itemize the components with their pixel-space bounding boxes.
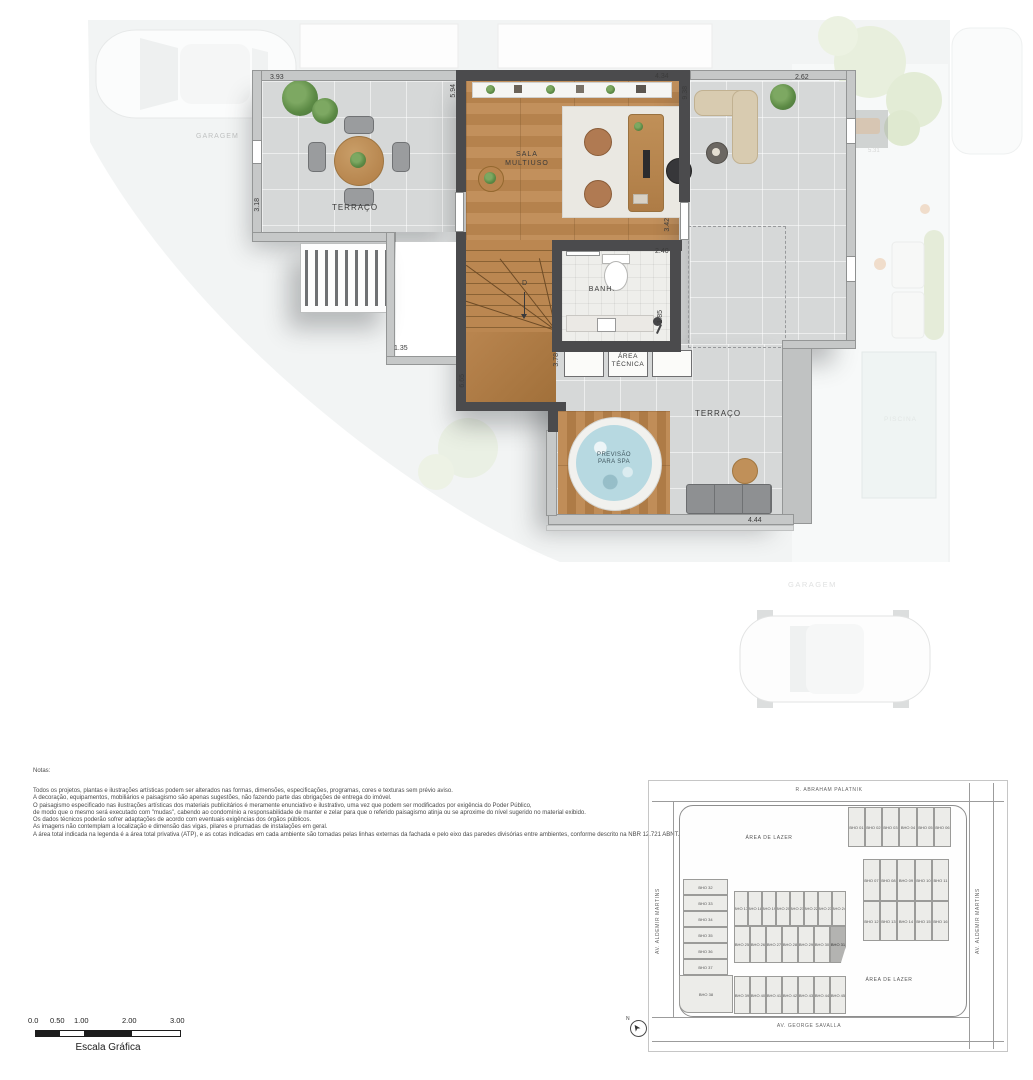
scale-bar <box>35 1030 181 1037</box>
shelf-plant <box>606 85 615 94</box>
scale-tick: 1.00 <box>74 1016 89 1025</box>
page: GARAGEM GARAGEM PISCINA 5.31 <box>0 0 1033 1080</box>
parapet <box>846 70 856 348</box>
leisure-area-top-label: ÁREA DE LAZER <box>709 835 829 841</box>
rug <box>562 106 684 218</box>
street-line <box>652 1041 1004 1042</box>
site-plan: R. ABRAHAM PALATNIK AV. GEORGE SAVALLA A… <box>648 780 1008 1052</box>
dim-label: 2.62 <box>795 74 809 81</box>
table-plant <box>350 152 366 168</box>
stair-arrow-head <box>521 314 527 319</box>
dim-label: 2.40 <box>655 248 669 255</box>
site-unit: BHO 24 <box>832 891 846 926</box>
plant <box>770 84 796 110</box>
site-unit: BHO 23 <box>818 891 832 926</box>
monitor <box>643 150 650 178</box>
desk-plant <box>634 122 643 131</box>
spa-label: PREVISÃO PARA SPA <box>584 452 644 466</box>
site-unit: BHO 22 <box>804 891 818 926</box>
tech-area-line2: TÉCNICA <box>606 361 650 369</box>
site-unit: BHO 36 <box>683 943 728 959</box>
dim-label: 3.78 <box>553 353 560 367</box>
piscina-label: PISCINA <box>884 416 917 423</box>
site-unit: BHO 35 <box>683 927 728 943</box>
neighbor-dim-label: 5.31 <box>868 148 880 154</box>
sliding-door <box>680 202 689 240</box>
sink <box>597 318 616 332</box>
shelf-decor <box>636 85 646 93</box>
site-unit: BHO 07 <box>863 859 880 901</box>
site-unit: BHO 29 <box>798 926 814 963</box>
notes-block: Notas: Todos os projetos, plantas e ilus… <box>33 768 613 839</box>
site-unit: BHO 15 <box>915 901 932 941</box>
tree <box>418 454 454 490</box>
site-unit: BHO 01 <box>848 807 865 847</box>
site-unit: BHO 10 <box>915 859 932 901</box>
bath-door-leaf <box>566 251 600 256</box>
notes-line: As imagens não contemplam a localização … <box>33 824 613 831</box>
site-unit: BHO 42 <box>782 976 798 1014</box>
pool <box>862 352 936 498</box>
roof-panel <box>498 24 712 68</box>
dim-label: 4.44 <box>748 517 762 524</box>
roof-panel <box>300 24 458 68</box>
site-unit: BHO 18 <box>748 891 762 926</box>
side-table <box>874 258 886 270</box>
stair-winder <box>466 332 556 402</box>
site-unit: BHO 30 <box>814 926 830 963</box>
site-unit: BHO 17 <box>734 891 748 926</box>
site-unit: BHO 09 <box>897 859 915 901</box>
site-unit: BHO 39 <box>734 976 750 1014</box>
shelf-plant <box>486 85 495 94</box>
site-unit: BHO 26 <box>750 926 766 963</box>
lounger <box>892 292 924 338</box>
site-unit: BHO 16 <box>932 901 949 941</box>
parapet <box>690 70 854 80</box>
window <box>252 140 262 164</box>
stair-direction-label: D <box>519 279 531 288</box>
street-left-label: AV. ALDEMIR MARTINS <box>655 861 661 981</box>
shelf-decor <box>514 85 522 93</box>
scale-tick: 0.50 <box>50 1016 65 1025</box>
street-line <box>993 783 994 1049</box>
dim-label: 3.18 <box>254 198 261 212</box>
bath-label: BANH. <box>582 285 622 294</box>
scale-tick: 2.00 <box>122 1016 137 1025</box>
sliding-door <box>455 192 464 232</box>
notes-line: O paisagismo especificado nas ilustraçõe… <box>33 803 613 810</box>
street-top-label: R. ABRAHAM PALATNIK <box>739 787 919 793</box>
parapet-band <box>782 348 812 524</box>
notes-title: Notas: <box>33 768 613 774</box>
site-unit: BHO 38 <box>679 975 733 1013</box>
pergola-slats <box>305 250 387 306</box>
tech-area-label: ÁREA TÉCNICA <box>606 353 650 368</box>
site-unit: BHO 03 <box>882 807 899 847</box>
dim-label: 1.85 <box>657 310 664 324</box>
street-line <box>969 783 970 1049</box>
wall <box>548 402 558 432</box>
street-line <box>652 1017 969 1018</box>
notes-line: Todos os projetos, plantas e ilustrações… <box>33 788 613 795</box>
sala-label: SALA MULTIUSO <box>492 150 562 168</box>
street-right-label: AV. ALDEMIR MARTINS <box>975 861 981 981</box>
notes-line: A decoração, equipamentos, mobiliários e… <box>33 795 613 802</box>
street-line <box>652 801 1004 802</box>
garagem-bottom-label: GARAGEM <box>788 580 837 589</box>
notes-line: A área total indicada na legenda é a áre… <box>33 832 613 839</box>
side-table <box>732 458 758 484</box>
ac-unit <box>564 350 604 377</box>
scale-tick: 0.0 <box>28 1016 38 1025</box>
north-compass: N ➤ <box>626 1016 648 1038</box>
site-unit: BHO 41 <box>766 976 782 1014</box>
stair-arrow-line <box>524 292 525 314</box>
parapet <box>386 356 466 365</box>
dim-label: 1.35 <box>394 345 408 352</box>
dim-label: 5.94 <box>450 84 457 98</box>
tech-area-line1: ÁREA <box>618 353 638 360</box>
dim-label: 3.42 <box>664 218 671 232</box>
site-unit: BHO 37 <box>683 959 728 975</box>
site-unit: BHO 02 <box>865 807 882 847</box>
site-unit: BHO 13 <box>880 901 897 941</box>
desk-tray <box>633 194 648 204</box>
wall <box>552 240 562 352</box>
site-unit: BHO 27 <box>766 926 782 963</box>
staircase <box>466 240 556 332</box>
spa-label-line2: PARA SPA <box>584 459 644 466</box>
hedge <box>924 230 944 340</box>
void-outline <box>688 226 786 348</box>
terrace-left-label: TERRAÇO <box>320 203 390 212</box>
site-unit: BHO 21 <box>790 891 804 926</box>
garagem-left-label: GARAGEM <box>196 133 239 140</box>
site-unit: BHO 20 <box>776 891 790 926</box>
notes-line: de modo que o mesmo será executado com "… <box>33 810 613 817</box>
window <box>846 118 856 144</box>
terrace-chair <box>344 116 374 134</box>
shelf-plant <box>546 85 555 94</box>
dim-label: 6.65 <box>459 374 466 388</box>
plant <box>484 172 496 184</box>
graphic-scale: 0.0 0.50 1.00 2.00 3.00 Escala Gráfica <box>28 1016 198 1060</box>
sala-label-line2: MULTIUSO <box>492 159 562 168</box>
site-unit: BHO 33 <box>683 895 728 911</box>
site-unit: BHO 28 <box>782 926 798 963</box>
site-unit: BHO 08 <box>880 859 897 901</box>
guest-chair <box>584 128 612 156</box>
scale-caption: Escala Gráfica <box>28 1042 188 1053</box>
site-unit: BHO 34 <box>683 911 728 927</box>
shelf-decor <box>576 85 584 93</box>
bench <box>686 484 772 514</box>
car-bottom <box>740 610 930 708</box>
site-unit: BHO 45 <box>830 976 846 1014</box>
stair-void <box>396 242 464 356</box>
dim-label: 9.38 <box>682 86 689 100</box>
wall <box>670 240 681 352</box>
fern <box>884 110 920 146</box>
site-unit: BHO 25 <box>734 926 750 963</box>
side-table <box>920 204 930 214</box>
street-line <box>673 801 674 1017</box>
tree <box>818 16 858 56</box>
site-unit: BHO 44 <box>814 976 830 1014</box>
notes-line: Os dados técnicos poderão sofrer adaptaç… <box>33 817 613 824</box>
north-label: N <box>626 1016 630 1022</box>
site-unit: BHO 43 <box>798 976 814 1014</box>
site-unit: BHO 06 <box>934 807 951 847</box>
parapet <box>252 232 396 242</box>
window <box>846 256 856 282</box>
site-unit: BHO 11 <box>932 859 949 901</box>
parapet <box>546 525 794 531</box>
dim-label: 3.93 <box>270 74 284 81</box>
site-unit: BHO 32 <box>683 879 728 895</box>
scale-tick: 3.00 <box>170 1016 185 1025</box>
car-top-right <box>952 28 1022 154</box>
terrace-right-label: TERRAÇO <box>688 409 748 418</box>
spa-label-line1: PREVISÃO <box>597 452 631 458</box>
table-lamp <box>712 148 720 156</box>
plant <box>312 98 338 124</box>
site-unit: BHO 12 <box>863 901 880 941</box>
terrace-chair <box>308 142 326 172</box>
sala-label-line1: SALA <box>516 151 538 158</box>
wall <box>552 341 680 352</box>
ac-unit <box>652 350 692 377</box>
wall <box>456 70 466 192</box>
site-unit: BHO 05 <box>917 807 934 847</box>
leisure-area-bottom-label: ÁREA DE LAZER <box>834 977 944 983</box>
site-unit: BHO 19 <box>762 891 776 926</box>
street-bottom-label: AV. GEORGE SAVALLA <box>709 1023 909 1029</box>
pergola <box>300 243 392 313</box>
parapet <box>546 430 557 516</box>
dim-label: 4.34 <box>655 73 669 80</box>
site-unit: BHO 14 <box>897 901 915 941</box>
site-unit: BHO 04 <box>899 807 917 847</box>
lounger <box>892 242 924 288</box>
guest-chair <box>584 180 612 208</box>
site-unit: BHO 40 <box>750 976 766 1014</box>
sofa <box>732 90 758 164</box>
terrace-chair <box>392 142 410 172</box>
